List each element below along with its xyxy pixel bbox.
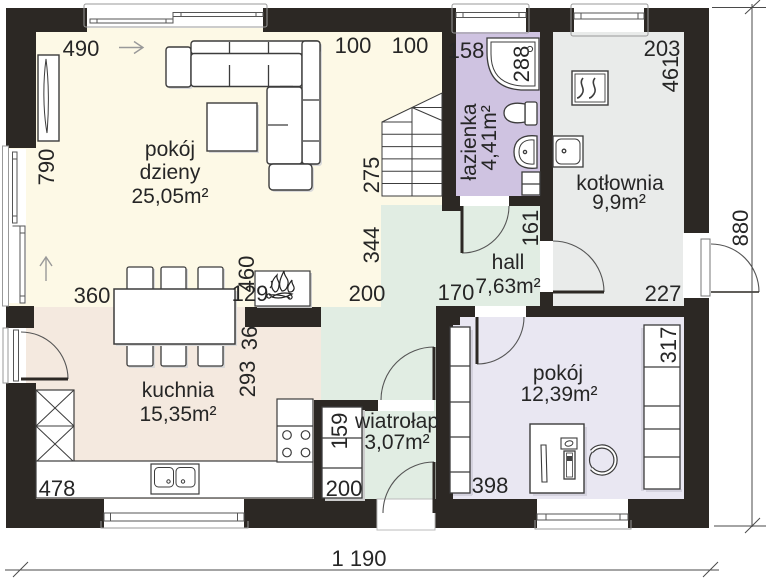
svg-text:490: 490	[63, 36, 100, 61]
svg-text:pokój: pokój	[533, 362, 583, 385]
svg-text:293: 293	[235, 361, 260, 398]
svg-text:200: 200	[349, 281, 386, 306]
svg-text:36: 36	[237, 326, 262, 350]
svg-text:3,07m²: 3,07m²	[364, 431, 429, 454]
svg-text:227: 227	[645, 281, 682, 306]
svg-text:kuchnia: kuchnia	[142, 379, 215, 402]
svg-text:1 190: 1 190	[331, 546, 386, 571]
svg-text:158: 158	[448, 38, 485, 63]
svg-text:275: 275	[359, 157, 384, 194]
svg-text:100: 100	[335, 33, 372, 58]
svg-text:317: 317	[656, 327, 681, 364]
svg-text:880: 880	[728, 210, 753, 247]
svg-text:461: 461	[658, 56, 683, 93]
svg-text:478: 478	[39, 476, 76, 501]
svg-text:15,35m²: 15,35m²	[139, 403, 216, 426]
svg-text:170: 170	[438, 280, 475, 305]
svg-text:200: 200	[326, 476, 363, 501]
svg-text:4,41m²: 4,41m²	[478, 105, 501, 170]
svg-text:9,9m²: 9,9m²	[592, 191, 646, 214]
svg-text:161: 161	[518, 210, 543, 247]
svg-text:344: 344	[359, 227, 384, 264]
svg-text:398: 398	[472, 473, 509, 498]
svg-text:790: 790	[34, 149, 59, 186]
svg-text:7,63m²: 7,63m²	[475, 275, 540, 298]
svg-text:25,05m²: 25,05m²	[131, 185, 208, 208]
svg-text:100: 100	[392, 33, 429, 58]
svg-text:dzieny: dzieny	[140, 161, 201, 184]
svg-text:pokój: pokój	[145, 138, 195, 161]
svg-text:360: 360	[74, 283, 111, 308]
svg-text:12,39m²: 12,39m²	[520, 383, 597, 406]
svg-text:wiatrołap: wiatrołap	[354, 410, 439, 433]
svg-text:129: 129	[232, 281, 269, 306]
svg-text:159: 159	[327, 413, 352, 450]
svg-text:hall: hall	[492, 251, 525, 274]
